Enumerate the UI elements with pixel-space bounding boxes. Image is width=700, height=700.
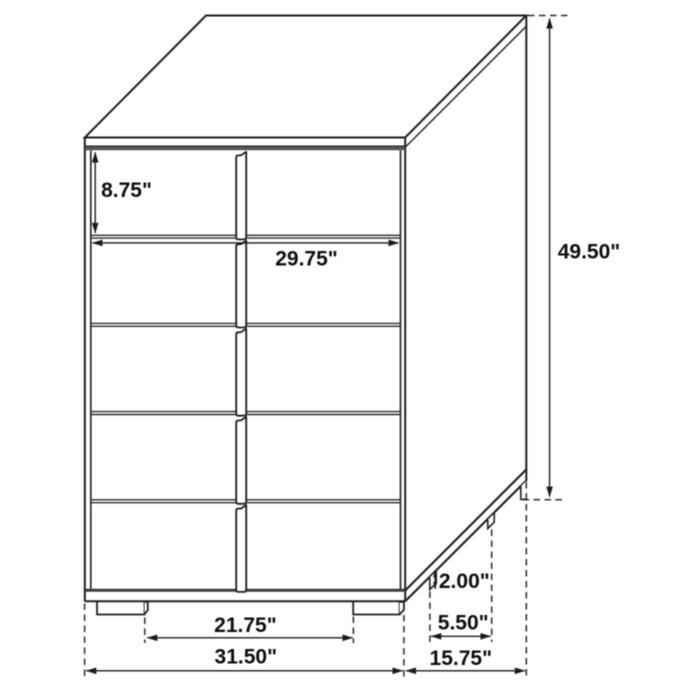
svg-text:5.50": 5.50" xyxy=(438,611,489,634)
svg-text:2.00": 2.00" xyxy=(439,570,490,593)
svg-text:29.75": 29.75" xyxy=(275,248,338,271)
svg-text:49.50": 49.50" xyxy=(558,241,621,264)
svg-text:21.75": 21.75" xyxy=(214,614,277,637)
svg-text:31.50": 31.50" xyxy=(215,645,278,668)
svg-text:8.75": 8.75" xyxy=(101,179,152,202)
svg-text:15.75": 15.75" xyxy=(430,647,493,670)
